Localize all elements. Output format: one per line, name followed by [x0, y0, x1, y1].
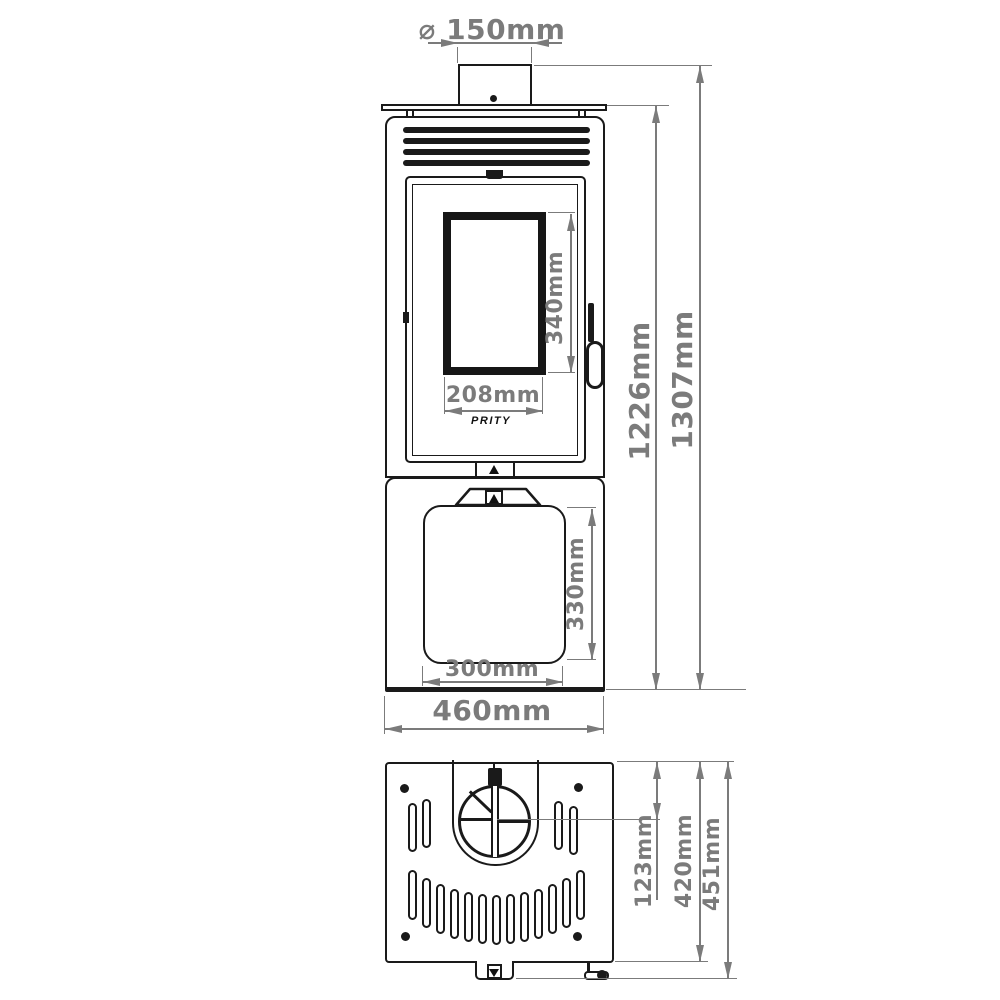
stove-top-plate: [381, 104, 607, 111]
mounting-hole: [401, 932, 410, 941]
vent-slot: [450, 889, 459, 939]
door-hinge: [403, 312, 409, 323]
door-handle-rod: [588, 303, 594, 342]
dim-arrow: [546, 678, 563, 686]
vent-slot: [548, 884, 557, 934]
vent-slot: [422, 799, 431, 848]
brand-logo: PRITY: [471, 415, 511, 427]
flue-pipe-bolt: [490, 95, 497, 102]
rear-tab-pointer: [489, 969, 499, 977]
vent-slot: [408, 870, 417, 920]
dim-lower-door-height-label: 330mm: [566, 537, 588, 631]
vent-slot: [554, 801, 563, 850]
dim-arrow: [445, 407, 462, 415]
dim-overall-width-label: 460mm: [432, 697, 551, 725]
mid-latch-pointer: [489, 465, 499, 474]
vent-slot: [506, 894, 515, 944]
extension-line: [606, 689, 746, 690]
vent-slot: [576, 870, 585, 920]
extension-line: [531, 47, 532, 63]
extension-line: [534, 65, 712, 66]
vent-slot: [422, 878, 431, 928]
vent-slot: [436, 884, 445, 934]
dim-arrow: [587, 725, 604, 733]
extension-line: [567, 507, 596, 508]
dim-arrow: [696, 945, 704, 962]
dim-glass-height-label: 340mm: [545, 251, 567, 345]
dim-arrow: [696, 762, 704, 779]
damper-chord: [498, 820, 529, 823]
extension-line: [516, 978, 737, 979]
dim-arrow: [532, 39, 549, 47]
vent-slot: [408, 803, 417, 852]
stove-technical-drawing: ⌀ 150mm 340mm 208mm PRITY: [0, 0, 1000, 1000]
air-vent-louver: [403, 138, 590, 144]
dim-arrow: [526, 407, 543, 415]
vent-slot: [562, 878, 571, 928]
dim-arrow: [567, 214, 575, 231]
dim-arrow: [696, 673, 704, 690]
vent-slot: [492, 895, 501, 945]
extension-line: [617, 761, 734, 762]
vent-slot: [520, 892, 529, 942]
damper-rod: [491, 786, 499, 857]
air-vent-louver: [403, 149, 590, 155]
dim-overall-depth-label: 451mm: [702, 817, 724, 911]
ash-door: [423, 505, 566, 664]
vent-slot: [569, 806, 578, 855]
vent-slot: [478, 894, 487, 944]
dim-arrow: [724, 762, 732, 779]
damper-chord: [460, 818, 491, 821]
dim-arrow: [588, 643, 596, 660]
dim-overall-width-line: [385, 728, 604, 730]
extension-line: [457, 47, 458, 63]
dim-arrow: [567, 356, 575, 373]
vent-slot: [464, 892, 473, 942]
mounting-hole: [573, 932, 582, 941]
mounting-hole: [400, 784, 409, 793]
dim-body-height-label: 1226mm: [626, 321, 654, 460]
dim-body-depth-label: 420mm: [674, 814, 696, 908]
glass-gasket: [451, 220, 538, 367]
dim-arrow: [423, 678, 440, 686]
air-vent-louver: [403, 160, 590, 166]
dim-lower-door-height-line: [591, 509, 593, 660]
dim-overall-depth-line: [727, 762, 729, 979]
door-glass: [443, 212, 546, 375]
extension-line: [615, 961, 708, 962]
air-vent-louver: [403, 127, 590, 133]
dim-glass-width-label: 208mm: [446, 385, 540, 407]
dim-glass-height-line: [570, 214, 572, 373]
vent-slot: [534, 889, 543, 939]
dim-arrow: [724, 962, 732, 979]
dim-arrow: [441, 39, 458, 47]
dim-arrow: [652, 106, 660, 123]
dim-arrow: [652, 673, 660, 690]
door-top-latch: [486, 170, 503, 179]
dim-overall-height-line: [699, 66, 701, 690]
door-handle: [586, 341, 604, 389]
dim-flue-offset-label: 123mm: [634, 814, 656, 908]
dim-arrow: [696, 66, 704, 83]
mounting-hole: [574, 783, 583, 792]
dim-arrow: [385, 725, 402, 733]
dim-overall-height-label: 1307mm: [669, 310, 697, 449]
dim-arrow: [588, 509, 596, 526]
extension-line: [548, 212, 575, 213]
damper-knob: [488, 768, 502, 786]
dim-arrow: [653, 762, 661, 779]
pedestal-latch-pointer: [489, 494, 499, 503]
dim-lower-door-width-label: 300mm: [445, 659, 539, 681]
